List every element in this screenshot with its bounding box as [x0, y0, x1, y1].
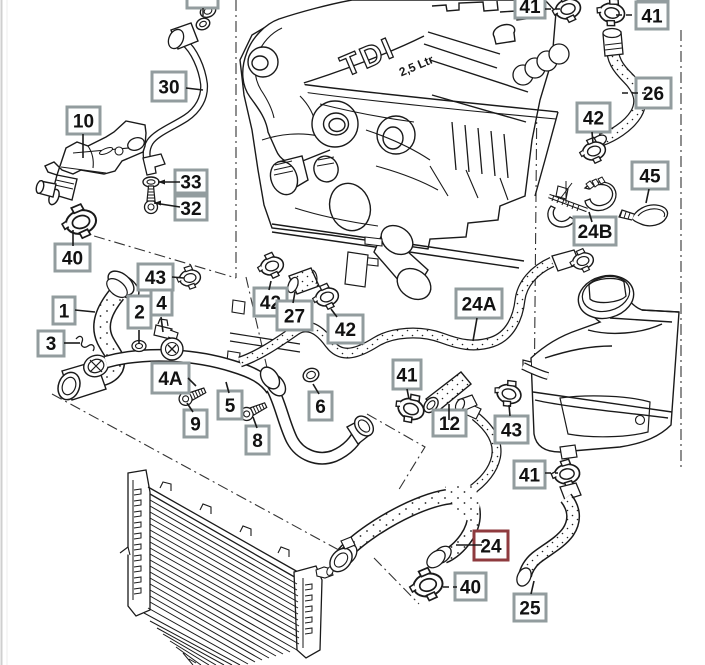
svg-text:26: 26 [643, 84, 664, 105]
svg-text:45: 45 [639, 167, 661, 188]
svg-text:42: 42 [335, 320, 356, 341]
svg-text:25: 25 [519, 599, 541, 620]
svg-text:41: 41 [519, 0, 541, 18]
svg-text:41: 41 [641, 7, 663, 28]
svg-text:2: 2 [134, 303, 145, 324]
svg-text:40: 40 [62, 249, 83, 270]
svg-text:42: 42 [583, 109, 604, 130]
svg-text:40: 40 [460, 578, 481, 599]
svg-text:27: 27 [284, 307, 305, 328]
svg-text:1: 1 [59, 302, 70, 323]
svg-text:4A: 4A [158, 369, 183, 390]
svg-text:5: 5 [225, 396, 236, 417]
svg-text:8: 8 [252, 431, 263, 452]
svg-text:41: 41 [396, 366, 418, 387]
svg-text:33: 33 [180, 173, 201, 194]
svg-text:32: 32 [180, 199, 201, 220]
svg-text:9: 9 [190, 415, 201, 436]
svg-text:24: 24 [480, 537, 502, 558]
svg-text:41: 41 [519, 466, 541, 487]
svg-text:10: 10 [73, 112, 94, 133]
svg-text:24B: 24B [578, 222, 613, 243]
svg-text:43: 43 [145, 268, 166, 289]
svg-text:6: 6 [315, 397, 326, 418]
svg-text:43: 43 [501, 421, 522, 442]
svg-text:30: 30 [158, 78, 179, 99]
svg-text:4: 4 [156, 294, 167, 315]
svg-text:24A: 24A [462, 295, 497, 316]
svg-text:3: 3 [46, 334, 57, 355]
